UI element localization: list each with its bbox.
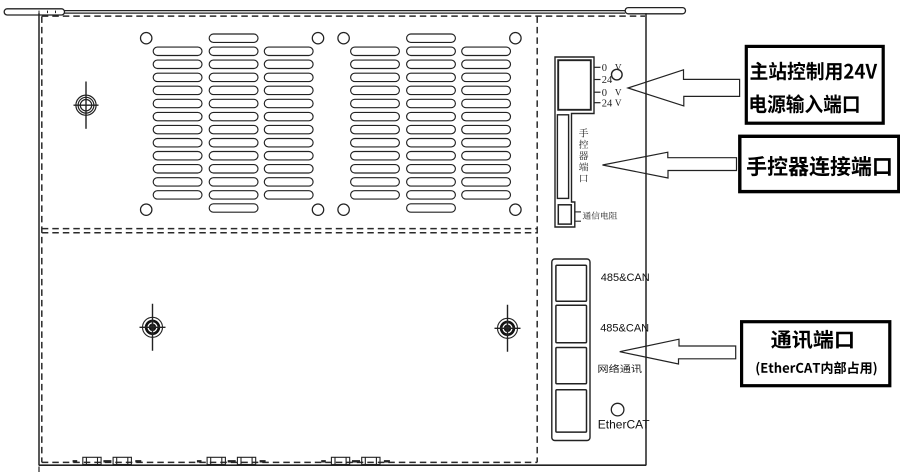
svg-text:485&CAN: 485&CAN [600, 323, 649, 335]
svg-text:485&CAN: 485&CAN [601, 272, 650, 284]
svg-text:V: V [615, 98, 622, 108]
svg-text:0: 0 [602, 63, 607, 74]
svg-text:V: V [615, 87, 622, 97]
svg-text:EtherCAT: EtherCAT [598, 417, 650, 431]
svg-text:0: 0 [602, 88, 607, 99]
svg-text:24: 24 [602, 98, 613, 109]
